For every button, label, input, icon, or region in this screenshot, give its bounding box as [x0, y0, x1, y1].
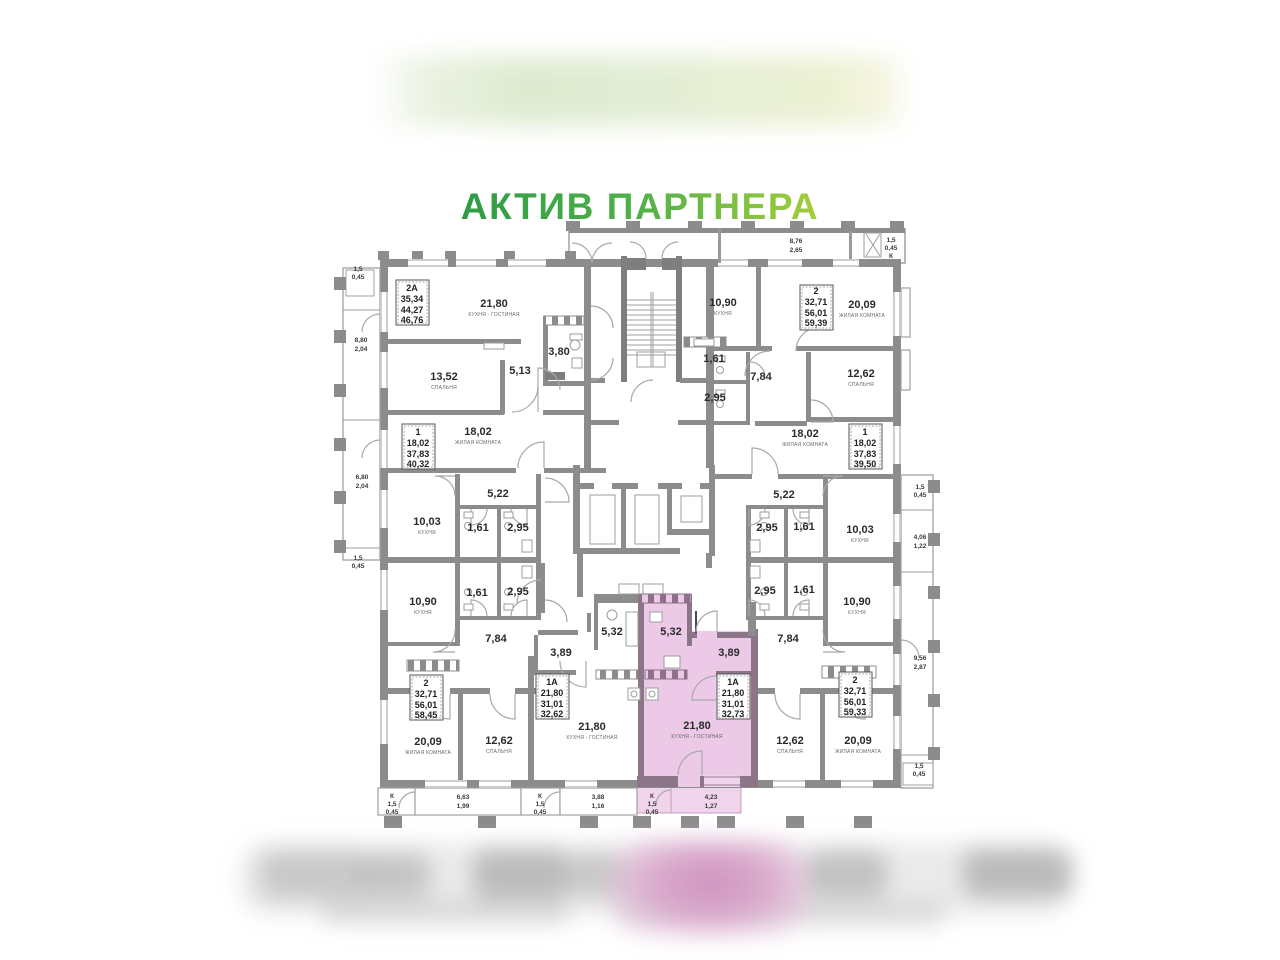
- svg-text:1,5: 1,5: [535, 801, 544, 808]
- svg-text:1,61: 1,61: [467, 522, 488, 534]
- svg-text:2,95: 2,95: [507, 522, 528, 534]
- svg-text:0,45: 0,45: [352, 274, 365, 281]
- svg-text:44,27: 44,27: [401, 305, 424, 315]
- svg-text:1,27: 1,27: [705, 803, 718, 810]
- svg-text:21,80: 21,80: [683, 720, 711, 732]
- svg-text:5,22: 5,22: [773, 489, 794, 501]
- svg-text:32,71: 32,71: [844, 686, 867, 696]
- svg-text:2,95: 2,95: [754, 585, 775, 597]
- svg-text:СПАЛЬНЯ: СПАЛЬНЯ: [486, 749, 512, 755]
- svg-text:10,90: 10,90: [409, 596, 437, 608]
- svg-text:46,76: 46,76: [401, 315, 424, 325]
- svg-text:2,95: 2,95: [507, 586, 528, 598]
- svg-text:13,52: 13,52: [430, 371, 458, 383]
- svg-text:39,50: 39,50: [854, 459, 877, 469]
- svg-text:37,83: 37,83: [407, 449, 430, 459]
- svg-text:0,45: 0,45: [352, 563, 365, 570]
- svg-text:0,45: 0,45: [914, 492, 927, 499]
- svg-text:1,16: 1,16: [592, 803, 605, 810]
- svg-text:1,61: 1,61: [466, 587, 487, 599]
- svg-text:32,73: 32,73: [722, 709, 745, 719]
- svg-text:1А: 1А: [546, 677, 558, 687]
- svg-text:К: К: [650, 793, 654, 800]
- svg-text:12,62: 12,62: [776, 735, 804, 747]
- svg-text:10,03: 10,03: [413, 516, 441, 528]
- svg-text:12,62: 12,62: [847, 368, 875, 380]
- svg-text:2: 2: [852, 675, 857, 685]
- svg-text:К: К: [889, 253, 893, 260]
- svg-text:СПАЛЬНЯ: СПАЛЬНЯ: [777, 749, 803, 755]
- svg-text:7,84: 7,84: [750, 371, 772, 383]
- svg-text:1: 1: [415, 427, 420, 437]
- svg-text:0,45: 0,45: [913, 771, 926, 778]
- svg-text:1А: 1А: [727, 677, 739, 687]
- svg-text:5,22: 5,22: [487, 488, 508, 500]
- svg-text:КУХНЯ - ГОСТИНАЯ: КУХНЯ - ГОСТИНАЯ: [671, 734, 722, 740]
- svg-text:1,5: 1,5: [886, 237, 895, 244]
- svg-text:КУХНЯ: КУХНЯ: [851, 538, 869, 544]
- svg-text:31,01: 31,01: [541, 699, 564, 709]
- svg-text:2: 2: [813, 286, 818, 296]
- svg-text:1,5: 1,5: [915, 484, 924, 491]
- svg-text:1,5: 1,5: [353, 555, 362, 562]
- svg-text:0,45: 0,45: [646, 809, 659, 816]
- svg-text:АКТИВ ПАРТНЕРА: АКТИВ ПАРТНЕРА: [461, 186, 819, 227]
- svg-text:1,22: 1,22: [914, 543, 927, 550]
- svg-text:2: 2: [423, 678, 428, 688]
- svg-text:18,02: 18,02: [791, 428, 819, 440]
- svg-text:7,84: 7,84: [485, 633, 507, 645]
- svg-text:8,80: 8,80: [355, 337, 368, 344]
- svg-text:58,45: 58,45: [415, 710, 438, 720]
- svg-text:2А: 2А: [406, 283, 418, 293]
- svg-text:КУХНЯ: КУХНЯ: [714, 311, 732, 317]
- svg-text:10,03: 10,03: [846, 524, 874, 536]
- svg-text:3,88: 3,88: [592, 794, 605, 801]
- svg-text:59,39: 59,39: [805, 318, 828, 328]
- svg-text:КУХНЯ - ГОСТИНАЯ: КУХНЯ - ГОСТИНАЯ: [468, 312, 519, 318]
- svg-text:32,62: 32,62: [541, 709, 564, 719]
- svg-text:59,33: 59,33: [844, 707, 867, 717]
- svg-text:СПАЛЬНЯ: СПАЛЬНЯ: [431, 385, 457, 391]
- svg-text:4,06: 4,06: [914, 534, 927, 541]
- svg-text:20,09: 20,09: [414, 736, 442, 748]
- svg-text:1,5: 1,5: [647, 801, 656, 808]
- svg-text:СПАЛЬНЯ: СПАЛЬНЯ: [848, 382, 874, 388]
- svg-text:2,87: 2,87: [914, 664, 927, 671]
- svg-text:56,01: 56,01: [805, 308, 828, 318]
- svg-text:5,32: 5,32: [601, 626, 622, 638]
- svg-text:ЖИЛАЯ КОМНАТА: ЖИЛАЯ КОМНАТА: [835, 749, 882, 755]
- svg-text:ЖИЛАЯ КОМНАТА: ЖИЛАЯ КОМНАТА: [405, 750, 452, 756]
- svg-text:3,80: 3,80: [548, 346, 569, 358]
- svg-text:6,63: 6,63: [457, 794, 470, 801]
- svg-text:1,61: 1,61: [793, 584, 814, 596]
- svg-text:12,62: 12,62: [485, 735, 513, 747]
- svg-text:К: К: [390, 793, 394, 800]
- svg-text:35,34: 35,34: [401, 294, 424, 304]
- svg-text:7,84: 7,84: [777, 633, 799, 645]
- svg-text:ЖИЛАЯ КОМНАТА: ЖИЛАЯ КОМНАТА: [839, 313, 886, 319]
- svg-text:2,95: 2,95: [756, 522, 777, 534]
- svg-text:56,01: 56,01: [415, 700, 438, 710]
- svg-text:18,02: 18,02: [854, 438, 877, 448]
- svg-text:20,09: 20,09: [844, 735, 872, 747]
- svg-text:1,5: 1,5: [353, 266, 362, 273]
- svg-text:1: 1: [862, 427, 867, 437]
- svg-text:31,01: 31,01: [722, 699, 745, 709]
- svg-text:КУХНЯ: КУХНЯ: [418, 530, 436, 536]
- svg-text:21,80: 21,80: [722, 688, 745, 698]
- svg-text:2,04: 2,04: [355, 346, 368, 353]
- svg-text:21,80: 21,80: [541, 688, 564, 698]
- svg-text:8,76: 8,76: [790, 238, 803, 245]
- svg-text:1,5: 1,5: [387, 801, 396, 808]
- svg-text:К: К: [538, 793, 542, 800]
- svg-text:5,13: 5,13: [509, 365, 530, 377]
- svg-text:6,80: 6,80: [356, 474, 369, 481]
- svg-text:20,09: 20,09: [848, 299, 876, 311]
- svg-text:1,61: 1,61: [703, 353, 724, 365]
- svg-text:21,80: 21,80: [578, 721, 606, 733]
- svg-text:4,23: 4,23: [705, 794, 718, 801]
- svg-text:56,01: 56,01: [844, 697, 867, 707]
- svg-text:ЖИЛАЯ КОМНАТА: ЖИЛАЯ КОМНАТА: [455, 440, 502, 446]
- svg-text:2,04: 2,04: [356, 483, 369, 490]
- svg-text:21,80: 21,80: [480, 298, 508, 310]
- svg-text:3,89: 3,89: [550, 647, 571, 659]
- svg-text:9,56: 9,56: [914, 655, 927, 662]
- svg-text:10,90: 10,90: [709, 297, 737, 309]
- svg-text:3,89: 3,89: [718, 647, 739, 659]
- svg-text:18,02: 18,02: [464, 426, 492, 438]
- svg-text:1,99: 1,99: [457, 803, 470, 810]
- svg-text:0,45: 0,45: [534, 809, 547, 816]
- svg-text:32,71: 32,71: [805, 297, 828, 307]
- svg-text:0,45: 0,45: [386, 809, 399, 816]
- svg-text:5,32: 5,32: [660, 626, 681, 638]
- svg-text:КУХНЯ: КУХНЯ: [414, 610, 432, 616]
- svg-text:32,71: 32,71: [415, 689, 438, 699]
- svg-text:КУХНЯ - ГОСТИНАЯ: КУХНЯ - ГОСТИНАЯ: [566, 735, 617, 741]
- svg-text:2,65: 2,65: [790, 247, 803, 254]
- svg-text:1,61: 1,61: [793, 521, 814, 533]
- svg-text:2,95: 2,95: [704, 392, 725, 404]
- svg-text:40,32: 40,32: [407, 459, 430, 469]
- svg-text:37,83: 37,83: [854, 449, 877, 459]
- svg-text:КУХНЯ: КУХНЯ: [848, 610, 866, 616]
- svg-text:18,02: 18,02: [407, 438, 430, 448]
- svg-text:0,45: 0,45: [885, 245, 898, 252]
- svg-text:1,5: 1,5: [914, 763, 923, 770]
- svg-text:ЖИЛАЯ КОМНАТА: ЖИЛАЯ КОМНАТА: [782, 442, 829, 448]
- svg-text:10,90: 10,90: [843, 596, 871, 608]
